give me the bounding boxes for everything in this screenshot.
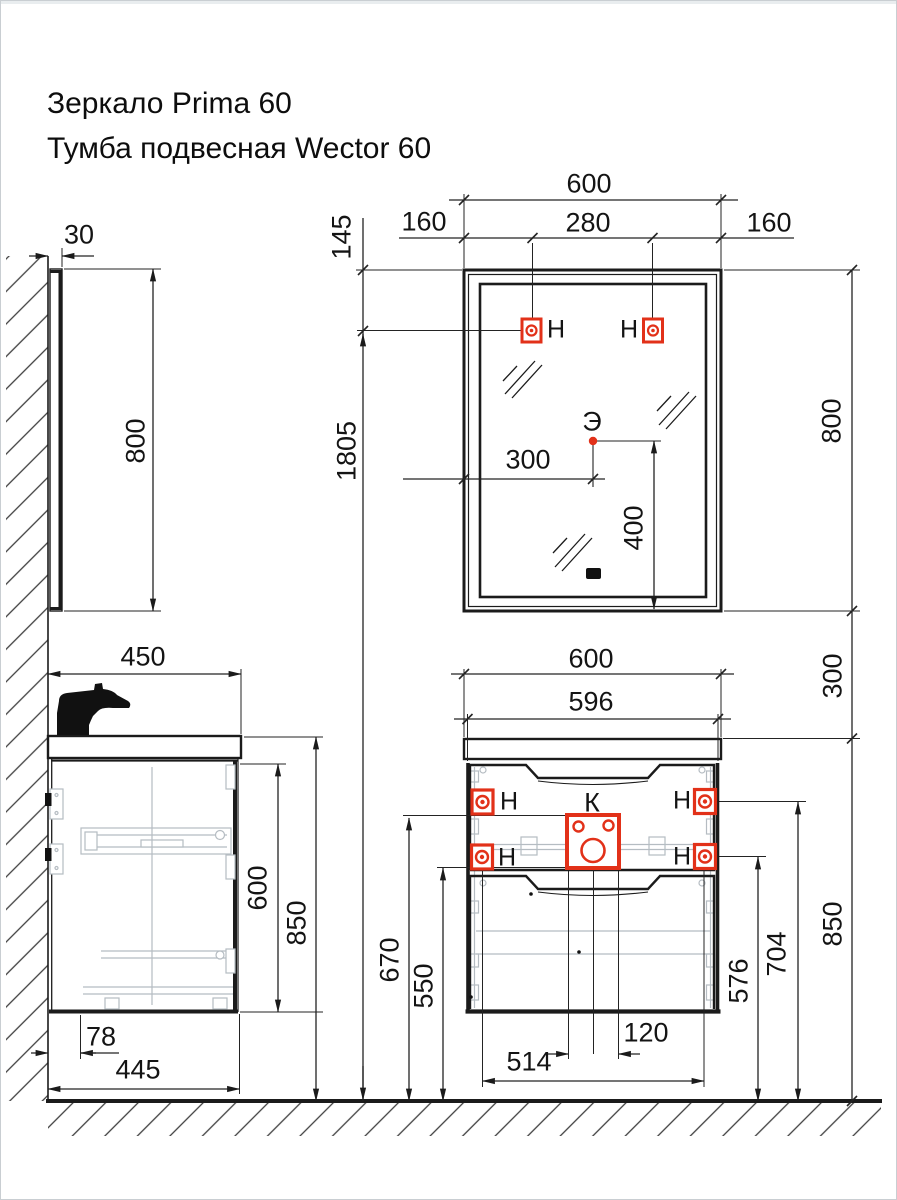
dim-gap-mirror-cabinet: 300 [820,653,847,698]
ir-sensor-icon [586,568,601,579]
dim-cabinet-height-from-floor: 850 [820,901,847,946]
dim-hook-offset-right: 160 [746,210,791,237]
dim-top-to-hooks: 145 [329,214,356,259]
dim-cabinet-side-height-floor: 850 [284,900,311,945]
wall-bracket-icon [45,793,52,806]
hook-marker-icon [472,790,493,814]
hook-label: Н [547,318,565,343]
hook-marker-icon [695,790,716,814]
page-edge-strip [1,1,897,4]
dim-hook-offset-left: 160 [401,209,446,236]
title-cabinet: Тумба подвесная Wector 60 [47,126,431,171]
dim-hook-spacing: 280 [565,210,610,237]
hook-marker-icon [644,319,663,342]
faucet-icon [57,683,130,738]
dim-lower-hooks-from-floor: 576 [726,958,753,1003]
title-mirror: Зеркало Prima 60 [47,81,431,126]
dim-drain-top-from-floor: 670 [377,937,404,982]
electrical-label: Э [582,409,601,436]
cabinet-side-view [45,683,241,1012]
mirror-side-view [50,269,62,611]
drain-bracket-icon [567,815,619,868]
dim-electrical-from-left: 300 [505,447,550,474]
hook-marker-icon [522,319,541,342]
dim-mirror-width: 600 [566,171,611,198]
dim-cabinet-width: 600 [568,646,613,673]
dim-cabinet-depth: 450 [120,644,165,671]
dim-upper-hooks-from-floor: 704 [764,931,791,976]
wall-bracket-icon [45,848,52,861]
dim-drain-bracket-width: 120 [623,1020,668,1047]
hook-label: Н [673,845,691,870]
dim-mirror-thickness: 30 [64,222,94,249]
dim-mirror-side-height: 800 [123,418,150,463]
electrical-point-icon [589,437,597,445]
hook-marker-icon [695,845,716,869]
dim-drain-bottom-from-floor: 550 [411,963,438,1008]
dim-cabinet-body-width: 596 [568,689,613,716]
floor-hatch [46,1101,882,1136]
dim-cabinet-body-height: 600 [245,865,272,910]
dim-electrical-from-bottom: 400 [621,505,648,550]
dim-back-offset: 78 [86,1024,116,1051]
page-title: Зеркало Prima 60 Тумба подвесная Wector … [47,81,431,171]
hook-marker-icon [472,845,493,869]
technical-drawing [1,1,897,1200]
dim-hooks-height-from-floor: 1805 [334,421,361,481]
hook-label: Н [498,846,516,871]
wall-hatch [6,256,48,1101]
dim-lower-hooks-spacing: 514 [506,1049,551,1076]
installation-drawing-page: Зеркало Prima 60 Тумба подвесная Wector … [0,0,897,1200]
drain-bracket-label: К [584,790,600,817]
hook-label: Н [500,790,518,815]
dim-mirror-height: 800 [819,398,846,443]
dim-bottom-depth: 445 [115,1057,160,1084]
hook-label: Н [673,789,691,814]
cabinet-front-view [464,739,721,1012]
hook-label: Н [620,318,638,343]
